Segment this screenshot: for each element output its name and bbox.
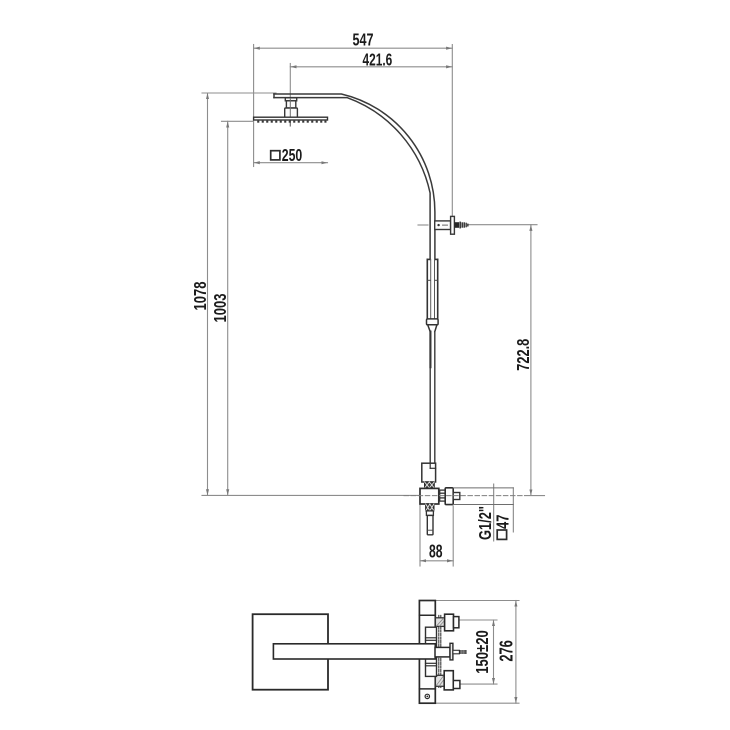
svg-text:250: 250 xyxy=(282,145,303,165)
svg-text:1003: 1003 xyxy=(210,293,230,322)
svg-text:276: 276 xyxy=(497,640,517,662)
svg-text:421.6: 421.6 xyxy=(363,49,393,69)
svg-text:47: 47 xyxy=(492,514,512,529)
svg-text:547: 547 xyxy=(353,30,374,50)
svg-text:1078: 1078 xyxy=(190,281,210,310)
svg-text:88: 88 xyxy=(429,542,443,562)
svg-text:150±20: 150±20 xyxy=(472,630,492,674)
svg-text:722.8: 722.8 xyxy=(513,339,533,371)
